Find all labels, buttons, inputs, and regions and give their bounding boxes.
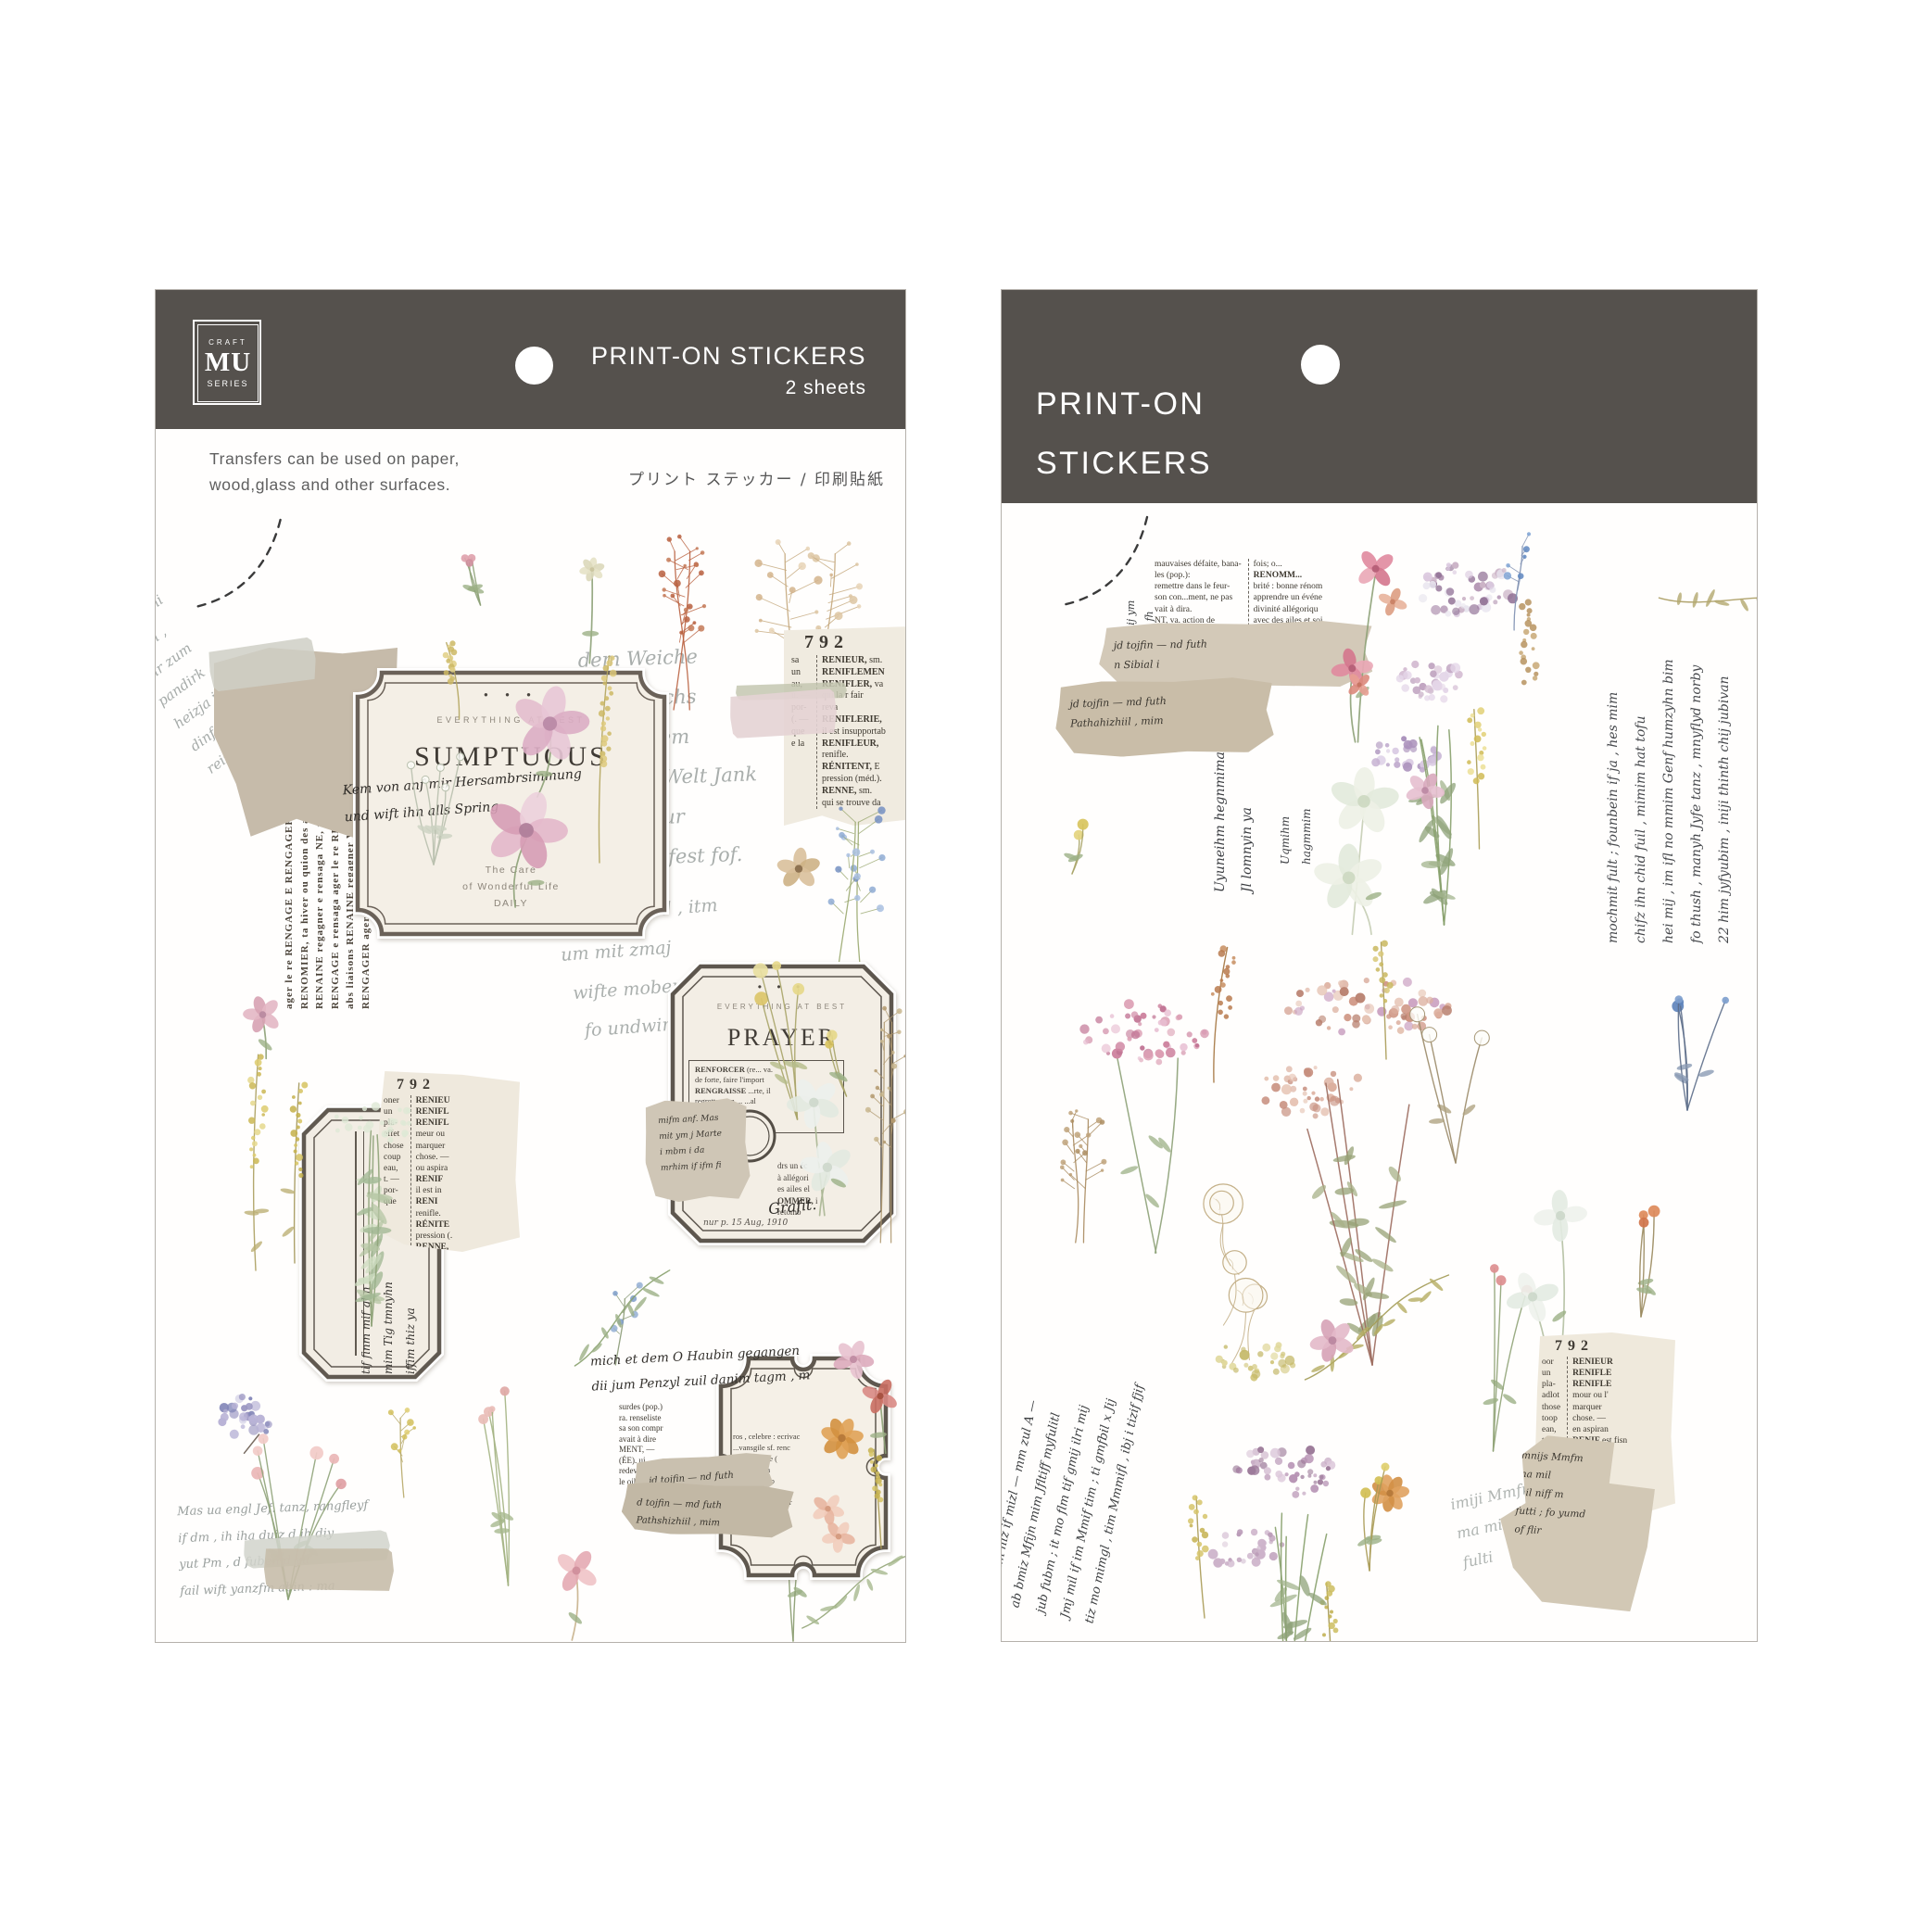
bottom-queen-anne (1213, 1330, 1301, 1399)
pink-rosebud (1340, 677, 1379, 714)
peach-rosebud (1370, 594, 1415, 633)
orange-daisy (816, 1428, 867, 1479)
yellow-wildflowers-2 (267, 1078, 322, 1263)
product-mockup: CRAFT MU SERIES PRINT-ON STICKERS 2 shee… (0, 0, 1931, 1932)
pink-phlox (1076, 987, 1210, 1256)
rust-gypsophila (638, 543, 722, 710)
yarrow-yellow-bits (1358, 939, 1414, 1059)
yellow-green-spike (863, 1446, 900, 1548)
product-title-line1: PRINT-ON (1036, 386, 1205, 423)
kraft-strip-2: d tojfin — md futhPathshizhiil , mim (621, 1481, 794, 1538)
yellow-buttercup-bottom (1343, 1459, 1396, 1571)
pink-hydrangea-single (1402, 781, 1448, 827)
logo-craft-text: CRAFT (208, 338, 247, 347)
logo-series-text: SERIES (207, 379, 248, 388)
subtitle-japanese: プリント ステッカー / 印刷貼紙 (628, 466, 885, 489)
pink-pansy-2 (475, 811, 577, 908)
pale-flower-stem (574, 546, 611, 664)
left-header-band: CRAFT MU SERIES PRINT-ON STICKERS 2 shee… (156, 290, 905, 429)
kraft-strip-r2: jd tojfin — md futhPathahizhiil , mim (1054, 676, 1275, 759)
sheet-count: 2 sheets (786, 377, 866, 399)
tan-single-flower (775, 858, 823, 912)
washi-tape-kraft-bottom (263, 1545, 395, 1594)
hang-hole (515, 347, 553, 385)
orange-flowers (1609, 1206, 1673, 1317)
hang-hole-2 (1301, 345, 1340, 385)
kraft-script-scrap: mifm anf. Masmit ym j Martei mbm i damrh… (642, 1096, 751, 1204)
sticker-sheet-left: CRAFT MU SERIES PRINT-ON STICKERS 2 shee… (155, 289, 906, 1643)
pink-poppy-bottom (548, 1553, 605, 1641)
white-soft-flowers (786, 1087, 869, 1217)
bottom-bouquet-stems (1222, 1493, 1357, 1642)
pink-bud-stems (460, 1372, 557, 1585)
sticker-sheet-right: PRINT-ON STICKERS chij ymmi fhmauvaises … (1001, 289, 1758, 1642)
usage-note: Transfers can be used on paper, wood,gla… (209, 446, 460, 499)
sketch-flowers (392, 753, 475, 865)
bottom-pink-hydrangea (1306, 1330, 1359, 1383)
product-title-line2: STICKERS (1036, 446, 1212, 482)
yellow-spike-top (434, 640, 485, 719)
dry-twigs (860, 1011, 906, 1243)
right-header-band: PRINT-ON STICKERS (1002, 290, 1757, 503)
queen-anne-greens (307, 1094, 436, 1326)
pink-pansy-1 (501, 705, 599, 798)
blue-flowers-right (1641, 976, 1734, 1110)
washi-tape-pink (729, 688, 838, 739)
trailing-stems (798, 1553, 906, 1636)
rosehip-sprig (450, 549, 511, 605)
yellow-sprig-bottom (385, 1414, 443, 1497)
mu-series-logo: CRAFT MU SERIES (193, 320, 261, 405)
yellow-small-flower (1053, 820, 1092, 874)
tiny-pink-pair (237, 1004, 288, 1059)
product-title: PRINT-ON STICKERS (591, 342, 866, 371)
logo-mu-text: MU (205, 347, 251, 378)
